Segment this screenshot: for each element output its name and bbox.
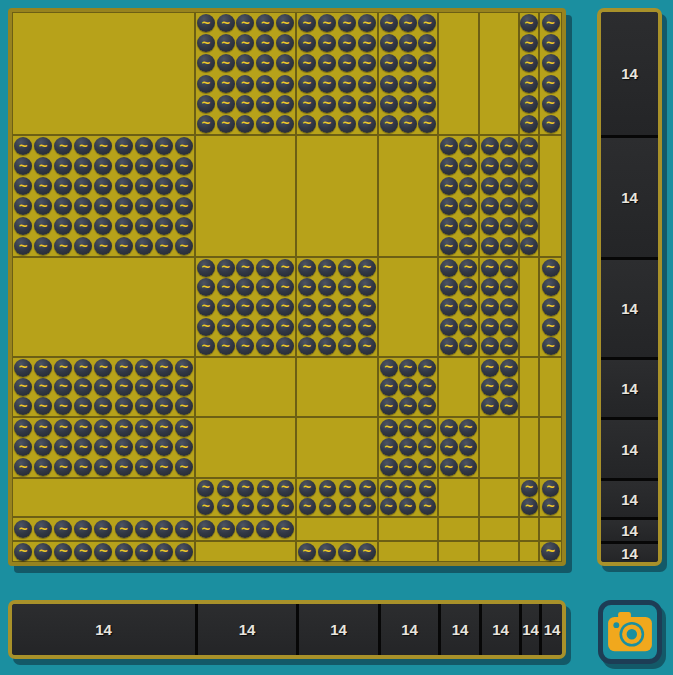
board-cell: ~ [73, 418, 93, 438]
coin-icon: ~ [298, 318, 316, 336]
coin-icon: ~ [418, 95, 436, 113]
board-cell: ~ [275, 33, 295, 53]
block-r2-c5-filled[interactable]: ~~~~~~~~~~~~ [438, 135, 479, 257]
coin-icon: ~ [155, 237, 173, 255]
coin-icon: ~ [276, 520, 294, 538]
board-cell: ~ [379, 457, 398, 477]
coin-icon: ~ [338, 34, 356, 52]
block-r2-c7-filled[interactable]: ~~~~~~ [519, 135, 539, 257]
coin-icon: ~ [520, 157, 538, 175]
board-cell: ~ [379, 438, 398, 458]
board-cell: ~ [398, 479, 417, 498]
coin-icon: ~ [155, 137, 173, 155]
coin-icon: ~ [115, 217, 133, 235]
coin-icon: ~ [276, 259, 294, 277]
board-cell: ~ [398, 377, 417, 396]
coin-icon: ~ [197, 480, 214, 497]
column-sum-label: 14 [330, 621, 347, 638]
block-r4-c7-empty[interactable] [519, 357, 539, 417]
block-r5-c6-empty[interactable] [479, 417, 519, 478]
board-cell: ~ [255, 73, 275, 93]
block-r5-c8-empty[interactable] [539, 417, 562, 478]
coin-icon: ~ [380, 438, 398, 456]
board-cell: ~ [520, 196, 538, 216]
board-cell: ~ [33, 518, 53, 540]
board-cell: ~ [255, 258, 275, 278]
board-cell: ~ [216, 336, 236, 356]
coin-icon: ~ [236, 95, 254, 113]
coin-icon: ~ [54, 217, 72, 235]
board-cell: ~ [337, 33, 357, 53]
board-cell: ~ [33, 196, 53, 216]
board-cell: ~ [53, 236, 73, 256]
block-r3-c7-empty[interactable] [519, 257, 539, 357]
board-cell: ~ [275, 297, 295, 317]
block-r8-c7-empty[interactable] [519, 541, 539, 562]
board-cell: ~ [418, 13, 437, 33]
board-cell: ~ [216, 53, 236, 73]
block-r1-c7-filled[interactable]: ~~~~~~ [519, 12, 539, 135]
coin-icon: ~ [236, 259, 254, 277]
coin-icon: ~ [520, 217, 538, 235]
board-cell: ~ [357, 13, 377, 33]
block-r3-c2-filled[interactable]: ~~~~~~~~~~~~~~~~~~~~~~~~~ [195, 257, 296, 357]
coin-icon: ~ [94, 197, 112, 215]
block-r5-c4-filled[interactable]: ~~~~~~~~~ [378, 417, 438, 478]
coin-icon: ~ [135, 378, 153, 396]
board-cell: ~ [357, 336, 377, 356]
board-cell: ~ [93, 136, 113, 156]
board-cell: ~ [480, 278, 499, 298]
board-cell: ~ [337, 258, 357, 278]
board-cell: ~ [480, 136, 499, 156]
board-cell: ~ [337, 317, 357, 337]
coin-icon: ~ [74, 359, 92, 377]
board-cell: ~ [216, 73, 236, 93]
board-cell: ~ [174, 156, 194, 176]
coin-icon: ~ [338, 54, 356, 72]
block-r6-c3-filled[interactable]: ~~~~~~~~ [296, 478, 378, 517]
coin-icon: ~ [236, 54, 254, 72]
board-cell: ~ [134, 216, 154, 236]
block-r8-c3-filled[interactable]: ~~~~ [296, 541, 378, 562]
board-cell: ~ [13, 542, 33, 561]
board-cell: ~ [297, 542, 317, 561]
block-r3-c5-filled[interactable]: ~~~~~~~~~~ [438, 257, 479, 357]
coin-icon: ~ [520, 115, 538, 133]
coin-icon: ~ [276, 318, 294, 336]
block-r1-c3-filled[interactable]: ~~~~~~~~~~~~~~~~~~~~~~~~ [296, 12, 378, 135]
block-r7-c6-empty[interactable] [479, 517, 519, 541]
block-r1-c5-empty[interactable] [438, 12, 479, 135]
board-cell: ~ [73, 216, 93, 236]
board-cell: ~ [236, 317, 256, 337]
coin-icon: ~ [380, 359, 398, 377]
coin-icon: ~ [14, 197, 32, 215]
block-r4-c3-empty[interactable] [296, 357, 378, 417]
board-cell: ~ [13, 196, 33, 216]
coin-icon: ~ [197, 520, 215, 538]
coin-icon: ~ [135, 137, 153, 155]
coin-icon: ~ [34, 177, 52, 195]
coin-icon: ~ [197, 95, 215, 113]
board-cell: ~ [236, 518, 256, 540]
board-cell: ~ [439, 216, 459, 236]
board-cell: ~ [337, 73, 357, 93]
coin-icon: ~ [54, 397, 72, 415]
board-cell: ~ [134, 176, 154, 196]
block-r3-c3-filled[interactable]: ~~~~~~~~~~~~~~~~~~~~ [296, 257, 378, 357]
block-r6-c4-filled[interactable]: ~~~~~~ [378, 478, 438, 517]
coin-icon: ~ [155, 543, 173, 561]
board-cell: ~ [398, 438, 417, 458]
board-cell: ~ [255, 518, 275, 540]
block-r8-c4-empty[interactable] [378, 541, 438, 562]
coin-icon: ~ [481, 397, 499, 415]
block-r5-c3-empty[interactable] [296, 417, 378, 478]
block-r2-c2-empty[interactable] [195, 135, 296, 257]
board-cell: ~ [196, 94, 216, 114]
coin-icon: ~ [358, 318, 376, 336]
row-sum-label: 14 [621, 65, 638, 82]
board-cell: ~ [499, 377, 518, 396]
board-cell: ~ [317, 336, 337, 356]
coin-icon: ~ [155, 378, 173, 396]
block-r7-c3-empty[interactable] [296, 517, 378, 541]
coin-icon: ~ [358, 34, 376, 52]
board-cell: ~ [317, 498, 337, 517]
board-cell: ~ [317, 317, 337, 337]
coin-icon: ~ [217, 95, 235, 113]
board-cell: ~ [418, 358, 437, 377]
coin-icon: ~ [237, 480, 254, 497]
block-r1-c4-filled[interactable]: ~~~~~~~~~~~~~~~~~~ [378, 12, 438, 135]
coin-icon: ~ [155, 157, 173, 175]
coin-icon: ~ [500, 197, 518, 215]
board-cell: ~ [154, 457, 174, 477]
coin-icon: ~ [399, 34, 417, 52]
coin-icon: ~ [418, 75, 436, 93]
block-r6-c8-filled[interactable]: ~~ [539, 478, 562, 517]
coin-icon: ~ [217, 259, 235, 277]
coin-icon: ~ [440, 217, 458, 235]
block-r8-c8-filled[interactable]: ~ [539, 541, 562, 562]
board-cell: ~ [216, 94, 236, 114]
board-cell: ~ [33, 136, 53, 156]
block-r7-c2-filled[interactable]: ~~~~~ [195, 517, 296, 541]
row-sum-6: 14 [601, 478, 658, 517]
board-cell: ~ [398, 498, 417, 517]
coin-icon: ~ [276, 298, 294, 316]
coin-icon: ~ [14, 217, 32, 235]
puzzle-board: ~~~~~~~~~~~~~~~~~~~~~~~~~~~~~~~~~~~~~~~~… [8, 8, 566, 566]
board-cell: ~ [174, 438, 194, 458]
block-r5-c5-filled[interactable]: ~~~~~~ [438, 417, 479, 478]
coin-icon: ~ [440, 337, 458, 355]
block-r5-c1-filled[interactable]: ~~~~~~~~~~~~~~~~~~~~~~~~~~~ [12, 417, 195, 478]
block-r3-c1-empty[interactable] [12, 257, 195, 357]
coin-icon: ~ [277, 480, 294, 497]
board-cell: ~ [255, 33, 275, 53]
row-sum-2: 14 [601, 135, 658, 257]
board-cell: ~ [275, 53, 295, 73]
coin-icon: ~ [34, 520, 52, 538]
board-cell: ~ [134, 156, 154, 176]
board-cell: ~ [439, 176, 459, 196]
coin-icon: ~ [298, 115, 316, 133]
block-r4-c4-filled[interactable]: ~~~~~~~~~ [378, 357, 438, 417]
coin-icon: ~ [115, 359, 133, 377]
board-cell: ~ [439, 278, 459, 298]
board-cell: ~ [275, 94, 295, 114]
board-cell: ~ [13, 358, 33, 377]
board-cell: ~ [114, 457, 134, 477]
coin-icon: ~ [338, 14, 356, 32]
coin-icon: ~ [359, 498, 376, 515]
board-cell: ~ [520, 73, 538, 93]
board-cell: ~ [499, 317, 518, 337]
board-cell: ~ [33, 236, 53, 256]
block-r5-c7-empty[interactable] [519, 417, 539, 478]
board-cell: ~ [114, 418, 134, 438]
board-cell: ~ [73, 358, 93, 377]
board-cell: ~ [13, 176, 33, 196]
board-cell: ~ [459, 196, 479, 216]
coin-icon: ~ [256, 75, 274, 93]
board-cell: ~ [33, 418, 53, 438]
board-cell: ~ [154, 216, 174, 236]
board-cell: ~ [236, 336, 256, 356]
coin-icon: ~ [115, 137, 133, 155]
board-cell: ~ [154, 397, 174, 416]
board-cell: ~ [357, 297, 377, 317]
block-r1-c6-empty[interactable] [479, 12, 519, 135]
coin-icon: ~ [217, 278, 235, 296]
board-cell: ~ [480, 377, 499, 396]
coin-icon: ~ [399, 419, 417, 437]
board-cell: ~ [134, 196, 154, 216]
board-cell: ~ [499, 136, 518, 156]
board-cell: ~ [540, 278, 561, 298]
board-cell: ~ [520, 176, 538, 196]
board-cell: ~ [439, 196, 459, 216]
coin-icon: ~ [520, 197, 538, 215]
board-cell: ~ [499, 358, 518, 377]
block-r3-c8-filled[interactable]: ~~~~~ [539, 257, 562, 357]
coin-icon: ~ [500, 318, 518, 336]
board-cell: ~ [379, 13, 398, 33]
column-sum-label: 14 [522, 621, 539, 638]
board-cell: ~ [398, 418, 417, 438]
block-r7-c8-empty[interactable] [539, 517, 562, 541]
board-cell: ~ [540, 53, 561, 73]
coin-icon: ~ [155, 438, 173, 456]
board-cell: ~ [337, 479, 357, 498]
board-cell: ~ [53, 176, 73, 196]
block-r7-c5-empty[interactable] [438, 517, 479, 541]
coin-icon: ~ [520, 54, 538, 72]
coin-icon: ~ [14, 419, 32, 437]
board-cell: ~ [174, 236, 194, 256]
board-cell: ~ [93, 518, 113, 540]
coin-icon: ~ [197, 115, 215, 133]
block-r7-c7-empty[interactable] [519, 517, 539, 541]
block-r6-c2-filled[interactable]: ~~~~~~~~~~ [195, 478, 296, 517]
board-cell: ~ [357, 94, 377, 114]
board-cell: ~ [174, 216, 194, 236]
block-r6-c1-empty[interactable] [12, 478, 195, 517]
board-cell: ~ [114, 176, 134, 196]
coin-icon: ~ [256, 34, 274, 52]
block-r2-c4-empty[interactable] [378, 135, 438, 257]
board-cell: ~ [275, 258, 295, 278]
coin-icon: ~ [380, 397, 398, 415]
board-cell: ~ [73, 438, 93, 458]
coin-icon: ~ [175, 378, 193, 396]
board-cell: ~ [439, 336, 459, 356]
coin-icon: ~ [155, 419, 173, 437]
block-r4-c5-empty[interactable] [438, 357, 479, 417]
coin-icon: ~ [115, 438, 133, 456]
coin-icon: ~ [319, 480, 336, 497]
coin-icon: ~ [155, 197, 173, 215]
board-cell: ~ [174, 176, 194, 196]
block-r3-c6-filled[interactable]: ~~~~~~~~~~ [479, 257, 519, 357]
board-cell: ~ [398, 358, 417, 377]
board-cell: ~ [480, 196, 499, 216]
coin-icon: ~ [217, 520, 235, 538]
board-cell: ~ [134, 418, 154, 438]
block-r2-c3-empty[interactable] [296, 135, 378, 257]
block-r8-c1-filled[interactable]: ~~~~~~~~~ [12, 541, 195, 562]
board-cell: ~ [236, 114, 256, 134]
coin-icon: ~ [338, 259, 356, 277]
block-r7-c4-empty[interactable] [378, 517, 438, 541]
board-cell: ~ [174, 542, 194, 561]
board-cell: ~ [480, 397, 499, 416]
board-cell: ~ [255, 114, 275, 134]
coin-icon: ~ [155, 520, 173, 538]
block-r2-c1-filled[interactable]: ~~~~~~~~~~~~~~~~~~~~~~~~~~~~~~~~~~~~~~~~… [12, 135, 195, 257]
block-r8-c2-empty[interactable] [195, 541, 296, 562]
board-cell: ~ [93, 457, 113, 477]
coin-icon: ~ [74, 177, 92, 195]
board-cell: ~ [499, 336, 518, 356]
coin-icon: ~ [175, 458, 193, 476]
coin-icon: ~ [380, 14, 398, 32]
coin-icon: ~ [339, 480, 356, 497]
block-r1-c8-filled[interactable]: ~~~~~~ [539, 12, 562, 135]
coin-icon: ~ [418, 419, 436, 437]
coin-icon: ~ [520, 137, 538, 155]
block-r1-c2-filled[interactable]: ~~~~~~~~~~~~~~~~~~~~~~~~~~~~~~ [195, 12, 296, 135]
block-r6-c5-empty[interactable] [438, 478, 479, 517]
block-r2-c6-filled[interactable]: ~~~~~~~~~~~~ [479, 135, 519, 257]
coin-icon: ~ [155, 359, 173, 377]
row-sum-label: 14 [621, 491, 638, 508]
board-cell: ~ [398, 457, 417, 477]
board-cell: ~ [73, 236, 93, 256]
block-r7-c1-filled[interactable]: ~~~~~~~~~ [12, 517, 195, 541]
board-cell: ~ [73, 156, 93, 176]
coin-icon: ~ [542, 259, 560, 277]
block-r4-c6-filled[interactable]: ~~~~~~ [479, 357, 519, 417]
block-r6-c7-filled[interactable]: ~~ [519, 478, 539, 517]
column-sum-label: 14 [239, 621, 256, 638]
board-cell: ~ [255, 13, 275, 33]
board-cell: ~ [499, 156, 518, 176]
block-r2-c8-empty[interactable] [539, 135, 562, 257]
coin-icon: ~ [481, 197, 499, 215]
coin-icon: ~ [276, 115, 294, 133]
coin-icon: ~ [339, 498, 356, 515]
coin-icon: ~ [34, 359, 52, 377]
board-cell: ~ [297, 258, 317, 278]
coin-icon: ~ [256, 278, 274, 296]
coin-icon: ~ [399, 14, 417, 32]
block-r1-c1-empty[interactable] [12, 12, 195, 135]
board-cell: ~ [13, 418, 33, 438]
board-cell: ~ [174, 136, 194, 156]
coin-icon: ~ [175, 177, 193, 195]
coin-icon: ~ [380, 498, 397, 515]
board-cell: ~ [337, 542, 357, 561]
board-cell: ~ [275, 479, 295, 498]
block-r5-c2-empty[interactable] [195, 417, 296, 478]
coin-icon: ~ [440, 298, 458, 316]
block-r4-c1-filled[interactable]: ~~~~~~~~~~~~~~~~~~~~~~~~~~~ [12, 357, 195, 417]
board-cell: ~ [174, 457, 194, 477]
coin-icon: ~ [298, 95, 316, 113]
coin-icon: ~ [399, 115, 417, 133]
coin-icon: ~ [256, 318, 274, 336]
coin-icon: ~ [542, 54, 560, 72]
coin-icon: ~ [419, 480, 436, 497]
block-r8-c5-empty[interactable] [438, 541, 479, 562]
coin-icon: ~ [318, 75, 336, 93]
block-r4-c2-empty[interactable] [195, 357, 296, 417]
board-cell: ~ [379, 73, 398, 93]
coin-icon: ~ [115, 397, 133, 415]
coin-icon: ~ [217, 480, 234, 497]
board-cell: ~ [73, 542, 93, 561]
board-cell: ~ [93, 156, 113, 176]
board-cell: ~ [134, 438, 154, 458]
board-cell: ~ [53, 216, 73, 236]
board-cell: ~ [398, 397, 417, 416]
block-r6-c6-empty[interactable] [479, 478, 519, 517]
board-cell: ~ [275, 13, 295, 33]
board-cell: ~ [53, 377, 73, 396]
block-r4-c8-empty[interactable] [539, 357, 562, 417]
camera-screenshot-button[interactable] [598, 600, 662, 664]
coin-icon: ~ [338, 543, 356, 561]
block-r3-c4-empty[interactable] [378, 257, 438, 357]
coin-icon: ~ [115, 419, 133, 437]
column-sum-label: 14 [95, 621, 112, 638]
coin-icon: ~ [440, 318, 458, 336]
coin-icon: ~ [256, 259, 274, 277]
coin-icon: ~ [14, 237, 32, 255]
coin-icon: ~ [459, 177, 477, 195]
board-cell: ~ [317, 94, 337, 114]
block-r8-c6-empty[interactable] [479, 541, 519, 562]
row-sum-label: 14 [621, 189, 638, 206]
coin-icon: ~ [256, 115, 274, 133]
board-cell: ~ [540, 114, 561, 134]
coin-icon: ~ [34, 217, 52, 235]
board-cell: ~ [317, 479, 337, 498]
